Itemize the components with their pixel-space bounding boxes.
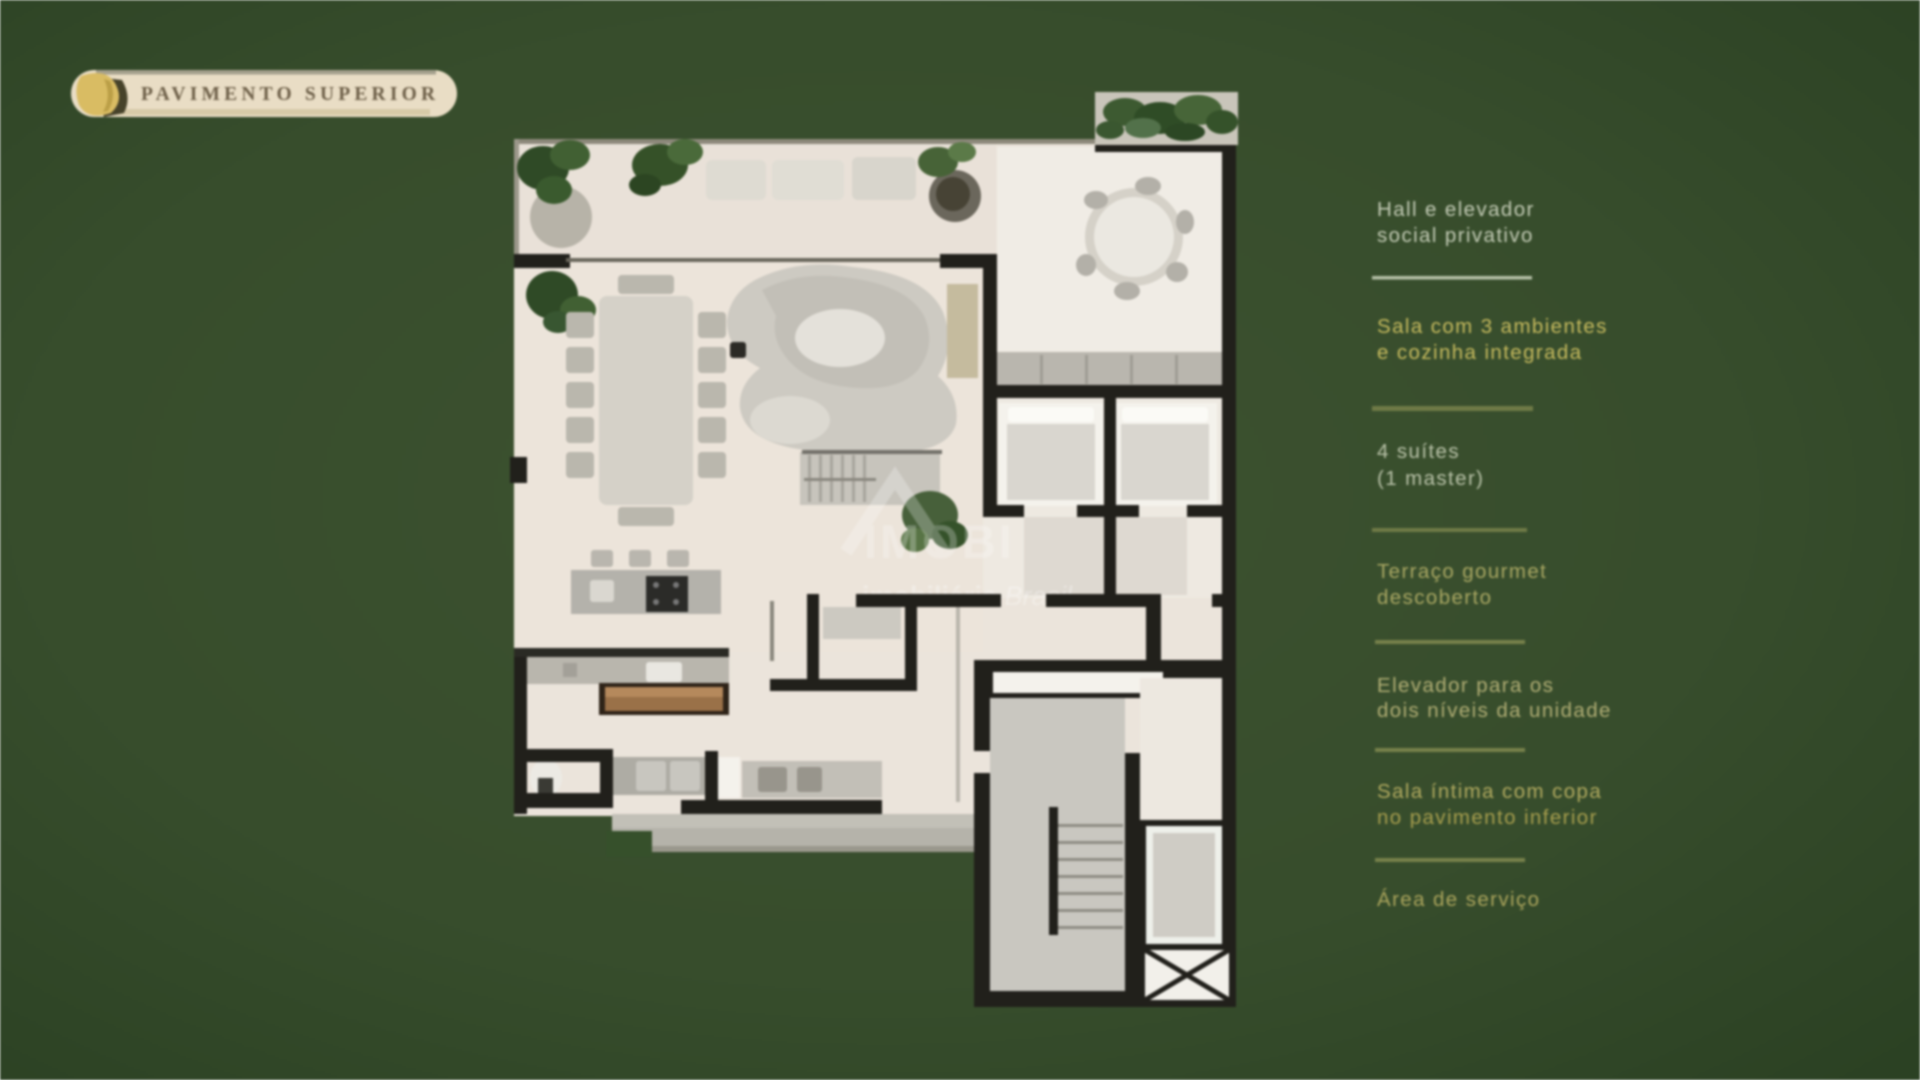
- svg-text:Sala com 3 ambientes: Sala com 3 ambientes: [1377, 315, 1608, 338]
- svg-text:IMOBI: IMOBI: [864, 515, 1015, 568]
- svg-text:Hall e elevador: Hall e elevador: [1377, 198, 1535, 221]
- svg-text:Elevador para os: Elevador para os: [1377, 674, 1554, 697]
- svg-text:e cozinha integrada: e cozinha integrada: [1377, 341, 1583, 364]
- svg-text:Terraço gourmet: Terraço gourmet: [1377, 560, 1547, 583]
- svg-text:dois níveis da unidade: dois níveis da unidade: [1377, 699, 1612, 722]
- svg-text:descoberto: descoberto: [1377, 586, 1492, 609]
- svg-text:4 suítes: 4 suítes: [1377, 440, 1460, 463]
- svg-text:Área de serviço: Área de serviço: [1377, 888, 1540, 911]
- svg-text:PAVIMENTO SUPERIOR: PAVIMENTO SUPERIOR: [141, 84, 439, 105]
- svg-text:(1 master): (1 master): [1377, 467, 1484, 490]
- svg-text:Sala íntima com copa: Sala íntima com copa: [1377, 780, 1602, 803]
- svg-text:social privativo: social privativo: [1377, 224, 1534, 247]
- svg-text:no pavimento inferior: no pavimento inferior: [1377, 806, 1598, 829]
